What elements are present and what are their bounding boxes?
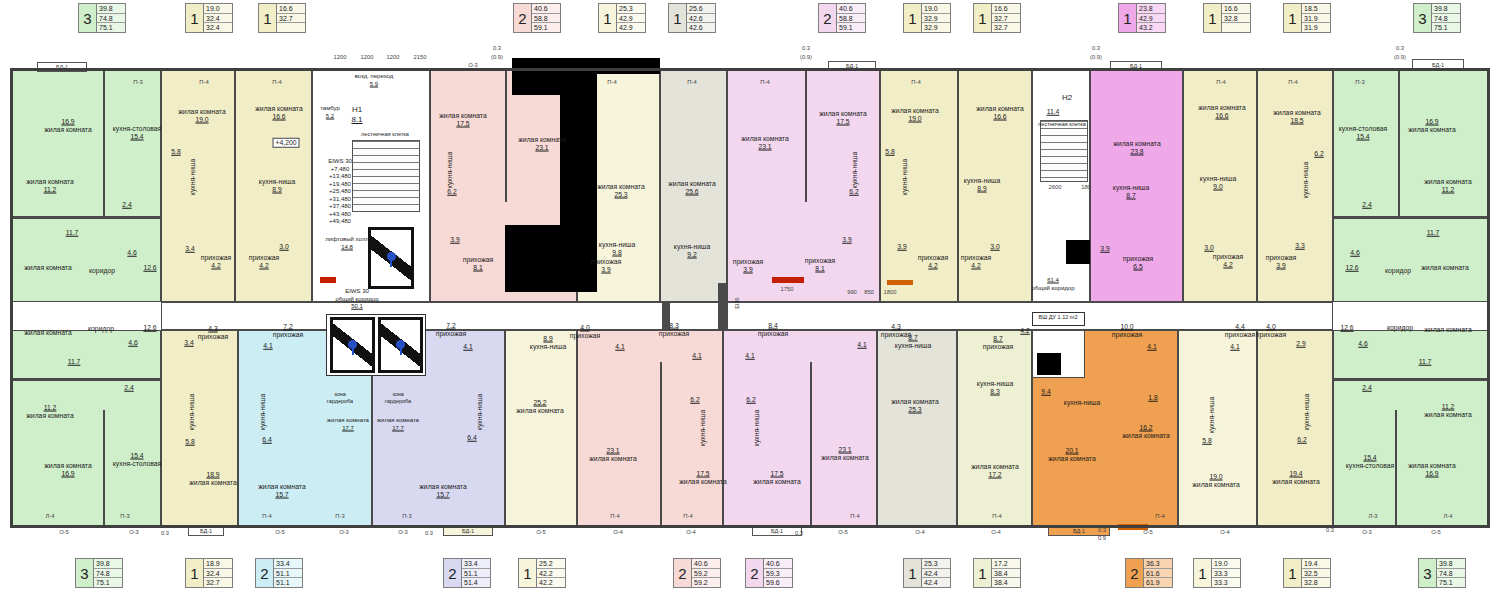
balcony-door: БД-1 bbox=[828, 61, 876, 71]
room-label: 4.1 bbox=[1147, 343, 1156, 351]
room-label: зонагардероба bbox=[327, 391, 353, 405]
room-label: жилая комната23.1 bbox=[741, 135, 788, 152]
wall-segment bbox=[103, 410, 105, 528]
axis-marker: О-5 bbox=[536, 529, 546, 535]
room-label: жилая комната11.2 bbox=[26, 178, 73, 195]
room-label: жилая комната25.3 bbox=[597, 183, 644, 200]
axis-marker: П-4 bbox=[1216, 79, 1225, 85]
room-label: кухня-ниша9.2 bbox=[674, 243, 710, 260]
room-label: кухня-ниша bbox=[851, 152, 859, 188]
badge-area-value: 32.4 bbox=[204, 13, 232, 23]
room-label: жилая комната16.6 bbox=[1198, 104, 1245, 121]
apartment-badge: 119.033.333.3 bbox=[1193, 558, 1241, 588]
badge-area-value: 39.8 bbox=[94, 559, 122, 568]
axis-marker: 0.3 bbox=[1396, 45, 1404, 51]
room-label: 17.5жилая комната bbox=[679, 470, 726, 487]
balcony-door: БД-1 bbox=[37, 62, 87, 72]
badge-areas: 33.451.151.1 bbox=[273, 559, 302, 587]
balcony-door: БД-1 bbox=[188, 526, 224, 536]
badge-area-value: 59.3 bbox=[764, 568, 792, 578]
room-label: 3.4 bbox=[184, 339, 193, 347]
room-label: зонагардероба bbox=[385, 391, 411, 405]
badge-area-value: 18.5 bbox=[1302, 4, 1330, 13]
room-label: прихожая8.1 bbox=[805, 257, 835, 274]
room-label: 3.9 bbox=[897, 243, 906, 251]
room-label: 12.6 bbox=[143, 264, 156, 272]
room-label: кухня-ниша bbox=[1303, 394, 1311, 430]
apt-3room-bottom-left bbox=[10, 330, 161, 528]
room-label: 7.2прихожая bbox=[436, 322, 466, 339]
badge-room-count: 1 bbox=[599, 4, 616, 32]
room-label: кухня-столовая15.4 bbox=[113, 125, 161, 142]
axis-marker: О-4 bbox=[686, 529, 696, 535]
room-label: жилая комната19.0 bbox=[891, 107, 938, 124]
room-label: 9.4 bbox=[1041, 388, 1050, 396]
axis-marker: П-4 bbox=[850, 513, 859, 519]
room-label: жилая комната bbox=[1421, 264, 1468, 272]
axis-marker: П-4 bbox=[610, 513, 619, 519]
badge-area-value: 33.3 bbox=[1212, 568, 1240, 578]
room-label: 61.4общий коридор bbox=[1032, 277, 1075, 292]
badge-areas: 23.842.943.2 bbox=[1136, 4, 1165, 32]
apartment-badge: 116.632.7 bbox=[258, 3, 306, 33]
room-label: кухня-ниша9.8 bbox=[599, 241, 635, 258]
badge-area-value: 39.8 bbox=[97, 4, 125, 13]
elevator-icon bbox=[387, 252, 396, 261]
room-label: 8.4прихожая bbox=[758, 322, 788, 339]
badge-area-value: 42.9 bbox=[617, 22, 645, 32]
badge-room-count: 3 bbox=[79, 4, 96, 32]
room-label: жилая комната bbox=[24, 329, 71, 337]
axis-marker: П-4 bbox=[683, 513, 692, 519]
room-label: 5.8 bbox=[185, 438, 194, 446]
axis-marker: 1200 bbox=[387, 54, 400, 60]
room-label: жилая комната bbox=[24, 264, 71, 272]
badge-room-count: 1 bbox=[974, 4, 991, 32]
room-label: кухня-ниша bbox=[901, 159, 909, 195]
badge-areas: 19.432.532.8 bbox=[1301, 559, 1330, 587]
room-label: кухня-ниша bbox=[1064, 399, 1100, 407]
axis-marker: П-4 bbox=[911, 79, 920, 85]
badge-area-value: 61.9 bbox=[1144, 577, 1172, 587]
room-label: лестничная клетка bbox=[361, 131, 409, 138]
room-label: 4.1 bbox=[263, 342, 272, 350]
room-label: жилая комната17.7 bbox=[377, 417, 419, 432]
room-label: 23.1жилая комната bbox=[589, 447, 636, 464]
room-label: кухня-ниша bbox=[1208, 397, 1216, 433]
room-label: тамбур5.2 bbox=[320, 105, 340, 120]
badge-room-count: 1 bbox=[1284, 559, 1301, 587]
apartment-badge: 233.451.151.4 bbox=[443, 558, 491, 588]
badge-area-value: 36.3 bbox=[1144, 559, 1172, 568]
axis-marker: О-5 bbox=[1431, 529, 1441, 535]
badge-area-value: 42.6 bbox=[687, 13, 715, 23]
apartment-badge: 240.658.859.1 bbox=[818, 3, 866, 33]
axis-marker: П-4 bbox=[1155, 513, 1164, 519]
axis-marker: 0.3 bbox=[1092, 45, 1100, 51]
axis-marker: Л-3 bbox=[1369, 513, 1378, 519]
badge-area-value: 16.6 bbox=[1222, 4, 1250, 13]
badge-areas: 39.874.875.1 bbox=[1436, 559, 1465, 587]
room-label: 3.9 bbox=[450, 236, 459, 244]
room-label: 4.3прихожая bbox=[198, 325, 228, 342]
room-label: 8.7кухня-ниша bbox=[895, 334, 931, 351]
section-cut-mask bbox=[512, 58, 597, 95]
room-label: жилая комната17.7 bbox=[327, 417, 369, 432]
room-label: 2.4 bbox=[124, 384, 133, 392]
badge-room-count: 1 bbox=[904, 4, 921, 32]
badge-area-value: 31.9 bbox=[1302, 13, 1330, 23]
wall-segment bbox=[810, 362, 812, 528]
room-label: 12.6 bbox=[1345, 264, 1358, 272]
apartment-badge: 125.342.942.9 bbox=[598, 3, 646, 33]
apt-3room-bottom-right bbox=[1333, 330, 1490, 528]
axis-marker: 0.3 bbox=[795, 530, 803, 536]
badge-area-value: 42.9 bbox=[1137, 13, 1165, 23]
badge-area-value: 43.2 bbox=[1137, 22, 1165, 32]
apartment-badge: 339.874.875.1 bbox=[1418, 558, 1466, 588]
wall-segment bbox=[10, 378, 161, 381]
badge-area-value: 32.8 bbox=[1222, 13, 1250, 23]
room-label: кухня-ниша bbox=[188, 394, 196, 430]
room-label: 4.1 bbox=[463, 343, 472, 351]
badge-area-value: 42.2 bbox=[537, 577, 565, 587]
room-label: прихожая3.9 bbox=[591, 258, 621, 275]
room-label: 2.4 bbox=[122, 201, 131, 209]
axis-marker: П-4 bbox=[272, 79, 281, 85]
room-label: +4,200 bbox=[273, 138, 300, 148]
room-label: лестничная клетка bbox=[1038, 121, 1086, 128]
axis-marker: О-4 bbox=[991, 529, 1001, 535]
room-label: кухня-ниша bbox=[259, 394, 267, 430]
room-label: жилая комната17.2 bbox=[971, 463, 1018, 480]
room-label: коридор bbox=[1387, 324, 1413, 332]
room-label: 6.2 bbox=[1297, 436, 1306, 444]
floor-plan: БД-1БД-1БД-1БД-1БД-1БД-1БД-1БД-116.9жила… bbox=[0, 0, 1500, 597]
badge-area-value: 17.2 bbox=[992, 559, 1020, 568]
room-label: 11.4 bbox=[1047, 108, 1060, 116]
badge-area-value: 59.2 bbox=[692, 577, 720, 587]
badge-room-count: 2 bbox=[444, 559, 461, 587]
axis-marker: 0.3 bbox=[493, 45, 501, 51]
badge-area-value: 32.9 bbox=[922, 22, 950, 32]
badge-room-count: 1 bbox=[669, 4, 686, 32]
room-label: возд. переход5.9 bbox=[355, 73, 394, 88]
room-label: 11.7 bbox=[1427, 229, 1440, 237]
room-label: 6.2 bbox=[447, 188, 456, 196]
badge-area-value: 23.8 bbox=[1137, 4, 1165, 13]
room-label: прихожая4.2 bbox=[249, 254, 279, 271]
badge-room-count: 3 bbox=[76, 559, 93, 587]
room-label: 5.8 bbox=[171, 148, 180, 156]
room-label: коридор bbox=[89, 267, 115, 275]
elevator-icon bbox=[396, 340, 405, 349]
axis-marker: О-3 bbox=[468, 62, 478, 68]
room-label: жилая комната15.7 bbox=[258, 483, 305, 500]
room-label: 5.8 bbox=[885, 148, 894, 156]
room-label: кухня-ниша bbox=[189, 159, 197, 195]
room-label: прихожая4.2 bbox=[1213, 253, 1243, 270]
wall-segment bbox=[1398, 70, 1400, 216]
axis-marker: 2150 bbox=[414, 54, 427, 60]
badge-area-value: 38.4 bbox=[992, 577, 1020, 587]
badge-area-value: 74.8 bbox=[1437, 568, 1465, 578]
room-label: кухня-ниша8.9 bbox=[964, 177, 1000, 194]
axis-marker: 850 bbox=[864, 289, 874, 295]
room-label: жилая комната17.5 bbox=[439, 112, 486, 129]
badge-room-count: 1 bbox=[259, 4, 276, 32]
room-label: 6.4 bbox=[262, 436, 271, 444]
room-label: ВШ ДУ 1.12 m2 bbox=[1039, 314, 1078, 321]
badge-area-value: 19.0 bbox=[204, 4, 232, 13]
room-label: кухня-ниша bbox=[446, 152, 454, 188]
axis-marker: О-5 bbox=[1143, 529, 1153, 535]
room-label: 3.0 bbox=[990, 243, 999, 251]
axis-marker: О-5 bbox=[59, 529, 69, 535]
axis-marker: (0.9) bbox=[491, 54, 503, 60]
room-label: 25.2жилая комната bbox=[516, 399, 563, 416]
axis-marker: 0.3 bbox=[161, 530, 169, 536]
room-label: 8.7прихожая bbox=[983, 335, 1013, 352]
room-label: 11.7 bbox=[66, 229, 79, 237]
room-label: 11.2жилая комната bbox=[1424, 403, 1471, 420]
room-label: жилая комната18.5 bbox=[1273, 109, 1320, 126]
room-label: 11.7 bbox=[68, 358, 81, 366]
badge-area-value: 42.4 bbox=[922, 568, 950, 578]
apt-1room-b12 bbox=[1257, 330, 1333, 528]
room-label: жилая комната23.1 bbox=[518, 136, 565, 153]
axis-marker: (0.9) bbox=[800, 54, 812, 60]
badge-room-count: 1 bbox=[1194, 559, 1211, 587]
axis-marker: 1800 bbox=[884, 289, 897, 295]
room-label: прихожая4.2 bbox=[918, 254, 948, 271]
badge-area-value: 51.1 bbox=[274, 568, 302, 578]
badge-area-value: 32.7 bbox=[992, 22, 1020, 32]
room-label: 19.4жилая комната bbox=[1272, 470, 1319, 487]
room-label: 2.9 bbox=[1296, 340, 1305, 348]
apartment-badge: 119.032.932.9 bbox=[903, 3, 951, 33]
room-label: 8.9кухня-ниша bbox=[530, 335, 566, 352]
badge-area-value: 51.4 bbox=[462, 577, 490, 587]
axis-marker: П-4 bbox=[1288, 79, 1297, 85]
badge-area-value: 31.9 bbox=[1302, 22, 1330, 32]
room-label: 10.0прихожая bbox=[1112, 323, 1142, 340]
badge-area-value: 19.4 bbox=[1302, 559, 1330, 568]
badge-room-count: 3 bbox=[1414, 4, 1431, 32]
room-label: 4.1 bbox=[857, 341, 866, 349]
section-cut-mask bbox=[560, 95, 597, 225]
room-label: кухня-столовая15.4 bbox=[1339, 125, 1387, 142]
apartment-badge: 125.642.642.6 bbox=[668, 3, 716, 33]
axis-marker: П-4 bbox=[199, 79, 208, 85]
badge-area-value: 75.1 bbox=[1437, 577, 1465, 587]
axis-marker: (0.9) bbox=[1090, 54, 1102, 60]
axis-marker: О-4 bbox=[915, 529, 925, 535]
badge-area-value: 59.1 bbox=[837, 22, 865, 32]
room-label: кухня-ниша bbox=[476, 394, 484, 430]
apartment-badge: 125.342.442.4 bbox=[903, 558, 951, 588]
apartment-badge: 116.632.8 bbox=[1203, 3, 1251, 33]
room-label: 3.4 bbox=[185, 245, 194, 253]
axis-marker: О-3 bbox=[129, 529, 139, 535]
room-label: прихожая4.2 bbox=[201, 254, 231, 271]
room-label: 15.4кухня-столовая bbox=[113, 452, 161, 469]
apartment-badge: 339.874.875.1 bbox=[75, 558, 123, 588]
room-label: жилая комната16.9 bbox=[44, 462, 91, 479]
axis-marker: 1750 bbox=[781, 286, 794, 292]
badge-areas: 16.632.7 bbox=[276, 4, 305, 32]
axis-marker: П-3 bbox=[133, 79, 142, 85]
badge-room-count: 1 bbox=[1119, 4, 1136, 32]
badge-area-value: 32.7 bbox=[277, 13, 305, 23]
axis-marker: 180 bbox=[1081, 184, 1091, 190]
room-label: 16.9жилая комната bbox=[1408, 118, 1455, 135]
badge-area-value: 40.6 bbox=[837, 4, 865, 13]
room-label: жилая комната16.6 bbox=[976, 105, 1023, 122]
axis-marker: О-4 bbox=[1220, 529, 1230, 535]
badge-area-value: 75.1 bbox=[97, 22, 125, 32]
room-label: кухня-ниша8.7 bbox=[1113, 184, 1149, 201]
apartment-badge: 117.238.438.4 bbox=[973, 558, 1021, 588]
badge-area-value bbox=[1222, 22, 1250, 32]
apartment-badge: 119.432.532.8 bbox=[1283, 558, 1331, 588]
room-label: жилая комната16.6 bbox=[255, 105, 302, 122]
wall-segment bbox=[103, 70, 105, 216]
room-label: коридор bbox=[1385, 267, 1411, 275]
badge-areas: 40.658.859.1 bbox=[531, 4, 560, 32]
badge-room-count: 1 bbox=[1204, 4, 1221, 32]
badge-area-value: 74.8 bbox=[1432, 13, 1460, 23]
badge-areas: 40.658.859.1 bbox=[836, 4, 865, 32]
axis-marker: 0.3 bbox=[425, 530, 433, 536]
badge-area-value: 33.4 bbox=[462, 559, 490, 568]
room-label: прихожая4.2 bbox=[961, 254, 991, 271]
badge-areas: 19.032.932.9 bbox=[921, 4, 950, 32]
room-label: жилая комната11.2 bbox=[1424, 178, 1471, 195]
badge-areas: 25.342.442.4 bbox=[921, 559, 950, 587]
wall-segment bbox=[10, 216, 161, 219]
wall-segment bbox=[805, 70, 807, 202]
wall-segment bbox=[660, 362, 662, 528]
room-label: EI30 bbox=[734, 297, 741, 308]
badge-area-value: 58.8 bbox=[532, 13, 560, 23]
room-label: 4.0прихожая bbox=[1256, 323, 1286, 340]
room-label: 11.7 bbox=[1419, 358, 1432, 366]
room-label: 4.6 bbox=[127, 249, 136, 257]
room-label: 20.1жилая комната bbox=[1048, 447, 1095, 464]
room-label: 3.0 bbox=[1204, 244, 1213, 252]
room-label: 11.2жилая комната bbox=[26, 404, 73, 421]
axis-marker: П-4 bbox=[992, 513, 1001, 519]
wall-segment bbox=[1333, 216, 1490, 219]
room-label: коридор bbox=[88, 325, 114, 333]
room-label: 8.3прихожая bbox=[659, 322, 689, 339]
balcony-door: БД-1 bbox=[443, 526, 493, 536]
axis-marker: П-4 bbox=[262, 513, 271, 519]
badge-room-count: 2 bbox=[1126, 559, 1143, 587]
room-label: 3.9 bbox=[1100, 245, 1109, 253]
badge-areas: 33.451.151.4 bbox=[461, 559, 490, 587]
apartment-badge: 240.658.859.1 bbox=[513, 3, 561, 33]
badge-area-value: 74.8 bbox=[97, 13, 125, 23]
room-label: 16.2жилая комната bbox=[1122, 424, 1169, 441]
badge-area-value: 32.7 bbox=[992, 13, 1020, 23]
badge-areas: 25.342.942.9 bbox=[616, 4, 645, 32]
room-label: прихожая3.9 bbox=[1266, 254, 1296, 271]
room-label: 4.6 bbox=[1350, 249, 1359, 257]
badge-room-count: 1 bbox=[974, 559, 991, 587]
badges-bottom-row: 339.874.875.1118.932.432.7233.451.151.12… bbox=[0, 558, 1500, 590]
balcony-door: БД-1 bbox=[1412, 59, 1464, 70]
room-label: 4.1 bbox=[1230, 343, 1239, 351]
room-label: 12.6 bbox=[143, 324, 156, 332]
badge-area-value: 42.4 bbox=[922, 577, 950, 587]
room-label: 2.4 bbox=[1362, 384, 1371, 392]
axis-marker: П-3 bbox=[402, 513, 411, 519]
axis-marker: П-4 bbox=[760, 79, 769, 85]
section-cut-mask bbox=[1037, 353, 1061, 375]
room-label: жилая комната19.0 bbox=[178, 108, 225, 125]
room-label: лифтовый холл14.8 bbox=[325, 236, 368, 251]
badge-area-value: 42.2 bbox=[537, 568, 565, 578]
apartment-badge: 118.932.432.7 bbox=[185, 558, 233, 588]
apt-1room-b9 bbox=[957, 330, 1032, 528]
badge-area-value: 19.0 bbox=[1212, 559, 1240, 568]
badge-areas: 39.874.875.1 bbox=[96, 4, 125, 32]
axis-marker: 1200 bbox=[361, 54, 374, 60]
room-label: 19.0жилая комната bbox=[1192, 473, 1239, 490]
axis-marker: 0.3 bbox=[802, 45, 810, 51]
room-label: 4.6 bbox=[128, 339, 137, 347]
axis-marker: П-4 bbox=[607, 79, 616, 85]
axis-marker: (0.9) bbox=[1394, 54, 1406, 60]
room-label: H2 bbox=[1062, 93, 1072, 103]
badge-room-count: 1 bbox=[904, 559, 921, 587]
axis-marker: П-3 bbox=[1355, 79, 1364, 85]
badge-area-value: 75.1 bbox=[94, 577, 122, 587]
room-label: 12.6 bbox=[1340, 324, 1353, 332]
axis-marker: 0.3 bbox=[1098, 527, 1106, 533]
room-label: жилая комната25.3 bbox=[891, 398, 938, 415]
badge-area-value: 58.8 bbox=[837, 13, 865, 23]
room-label: прихожая8.1 bbox=[463, 256, 493, 273]
badge-areas: 39.874.875.1 bbox=[93, 559, 122, 587]
section-cut-mask bbox=[597, 58, 660, 74]
room-label: 6.4 bbox=[467, 434, 476, 442]
wall-segment bbox=[1395, 410, 1397, 528]
badge-area-value: 32.4 bbox=[204, 22, 232, 32]
badge-area-value: 42.9 bbox=[617, 13, 645, 23]
staircase-flight bbox=[352, 140, 420, 212]
badge-area-value: 39.8 bbox=[1437, 559, 1465, 568]
axis-marker: О-5 bbox=[838, 529, 848, 535]
badge-area-value: 75.1 bbox=[1432, 22, 1460, 32]
axis-marker: 0.9 bbox=[1098, 535, 1106, 541]
badge-room-count: 3 bbox=[1419, 559, 1436, 587]
room-label: 4.1 bbox=[745, 352, 754, 360]
axis-marker: О-5 bbox=[275, 529, 285, 535]
axis-marker: П-4 bbox=[687, 79, 696, 85]
badge-areas: 16.632.732.7 bbox=[991, 4, 1020, 32]
badge-areas: 25.242.242.2 bbox=[536, 559, 565, 587]
badge-areas: 36.361.661.9 bbox=[1143, 559, 1172, 587]
room-label: жилая комната17.5 bbox=[819, 110, 866, 127]
room-label: 1.8 bbox=[1148, 394, 1157, 402]
apartment-badge: 339.874.875.1 bbox=[78, 3, 126, 33]
section-cut-mask bbox=[1066, 240, 1090, 264]
room-label: H18.1 bbox=[351, 105, 362, 125]
room-label: 7.2прихожая bbox=[273, 323, 303, 340]
